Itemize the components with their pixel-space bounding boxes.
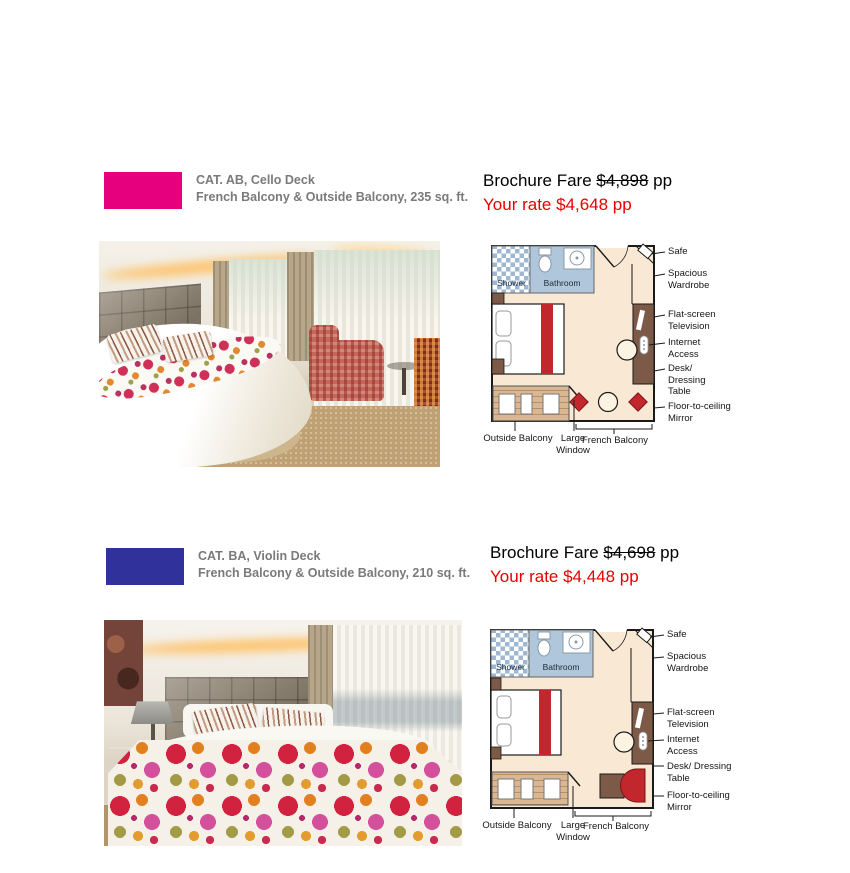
shower-label: Shower	[492, 662, 529, 672]
bathroom-label: Bathroom	[533, 662, 589, 672]
label-outside-balcony: Outside Balcony	[477, 820, 557, 832]
category-color-swatch-ba	[106, 548, 184, 585]
fare-unit: pp	[660, 543, 679, 562]
fare-old-price: $4,898	[596, 171, 648, 190]
floorplan-ba: Shower Bathroom Safe Spacious Wardrobe F…	[487, 624, 747, 852]
brochure-fare-line: Brochure Fare $4,898 pp	[483, 169, 672, 193]
wall-artwork	[104, 620, 143, 706]
toilet	[539, 256, 551, 272]
fare-label: Brochure Fare	[483, 171, 592, 190]
floral-bedspread	[108, 740, 462, 846]
label-safe: Safe	[668, 246, 728, 258]
label-flat-screen-television: Flat-screen Television	[668, 309, 732, 332]
your-rate-line: Your rate $4,448 pp	[490, 565, 679, 589]
bathroom-label: Bathroom	[534, 278, 590, 288]
fare-block-ab: Brochure Fare $4,898 pp Your rate $4,648…	[483, 169, 672, 217]
label-desk-dressing-table: Desk/ Dressing Table	[667, 761, 745, 784]
category-title: CAT. BA, Violin Deck	[198, 548, 498, 565]
label-spacious-wardrobe: Spacious Wardrobe	[668, 268, 726, 291]
balcony-chair	[543, 394, 559, 414]
category-subtitle: French Balcony & Outside Balcony, 210 sq…	[198, 565, 498, 582]
floorplan-ab: Shower Bathroom Safe Spacious Wardrobe F…	[488, 240, 744, 462]
label-internet-access: Internet Access	[668, 337, 718, 360]
category-subtitle: French Balcony & Outside Balcony, 235 sq…	[196, 189, 496, 206]
fare-old-price: $4,698	[603, 543, 655, 562]
toilet	[538, 640, 550, 656]
fare-block-ba: Brochure Fare $4,698 pp Your rate $4,448…	[490, 541, 679, 589]
label-desk-dressing-table: Desk/ Dressing Table	[668, 363, 716, 398]
side-table-leg	[402, 368, 405, 395]
category-header-ba: CAT. BA, Violin Deck French Balcony & Ou…	[198, 548, 498, 582]
pillow	[497, 724, 511, 746]
label-french-balcony: French Balcony	[577, 821, 655, 833]
cabin-photo-ab	[99, 241, 440, 467]
bed-runner	[541, 304, 553, 374]
brochure-fare-line: Brochure Fare $4,698 pp	[490, 541, 679, 565]
door-opening	[596, 244, 628, 248]
fare-unit: pp	[653, 171, 672, 190]
label-flat-screen-television: Flat-screen Television	[667, 707, 731, 730]
fare-label: Brochure Fare	[490, 543, 599, 562]
label-floor-to-ceiling-mirror: Floor-to-ceiling Mirror	[667, 790, 739, 813]
cabin-photo-ba	[104, 620, 462, 846]
balcony-chair	[498, 779, 514, 799]
bed-runner	[539, 690, 551, 755]
pillow	[496, 311, 511, 336]
category-color-swatch-ab	[104, 172, 182, 209]
french-balcony-rail	[575, 811, 651, 816]
balcony-chair	[499, 394, 515, 414]
your-rate-line: Your rate $4,648 pp	[483, 193, 672, 217]
stool	[614, 732, 634, 752]
pillow	[497, 696, 511, 718]
stool	[617, 340, 637, 360]
balcony-table	[521, 394, 532, 414]
armchair	[309, 340, 384, 401]
label-french-balcony: French Balcony	[576, 435, 654, 447]
lamp	[131, 701, 174, 724]
label-spacious-wardrobe: Spacious Wardrobe	[667, 651, 725, 674]
label-outside-balcony: Outside Balcony	[478, 433, 558, 445]
page: { "colors": { "cat_ab_swatch": "#e6007e"…	[0, 0, 850, 873]
french-balcony-rail	[576, 424, 652, 429]
table	[599, 393, 618, 412]
balcony-chair	[544, 779, 560, 799]
door-opening	[595, 628, 627, 632]
label-floor-to-ceiling-mirror: Floor-to-ceiling Mirror	[668, 401, 740, 424]
balcony-table	[521, 779, 533, 799]
shower-label: Shower	[493, 278, 530, 288]
category-title: CAT. AB, Cello Deck	[196, 172, 496, 189]
label-internet-access: Internet Access	[667, 734, 717, 757]
category-header-ab: CAT. AB, Cello Deck French Balcony & Out…	[196, 172, 496, 206]
label-safe: Safe	[667, 629, 727, 641]
